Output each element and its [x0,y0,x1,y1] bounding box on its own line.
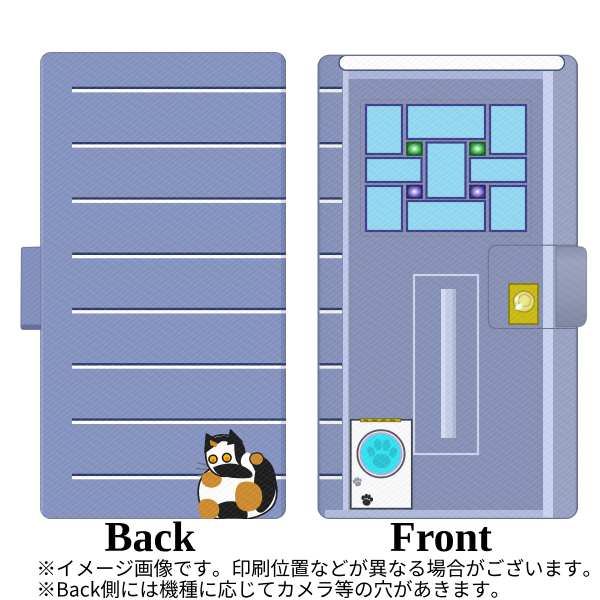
svg-text:Back: Back [104,515,196,561]
svg-text:Front: Front [390,515,492,561]
